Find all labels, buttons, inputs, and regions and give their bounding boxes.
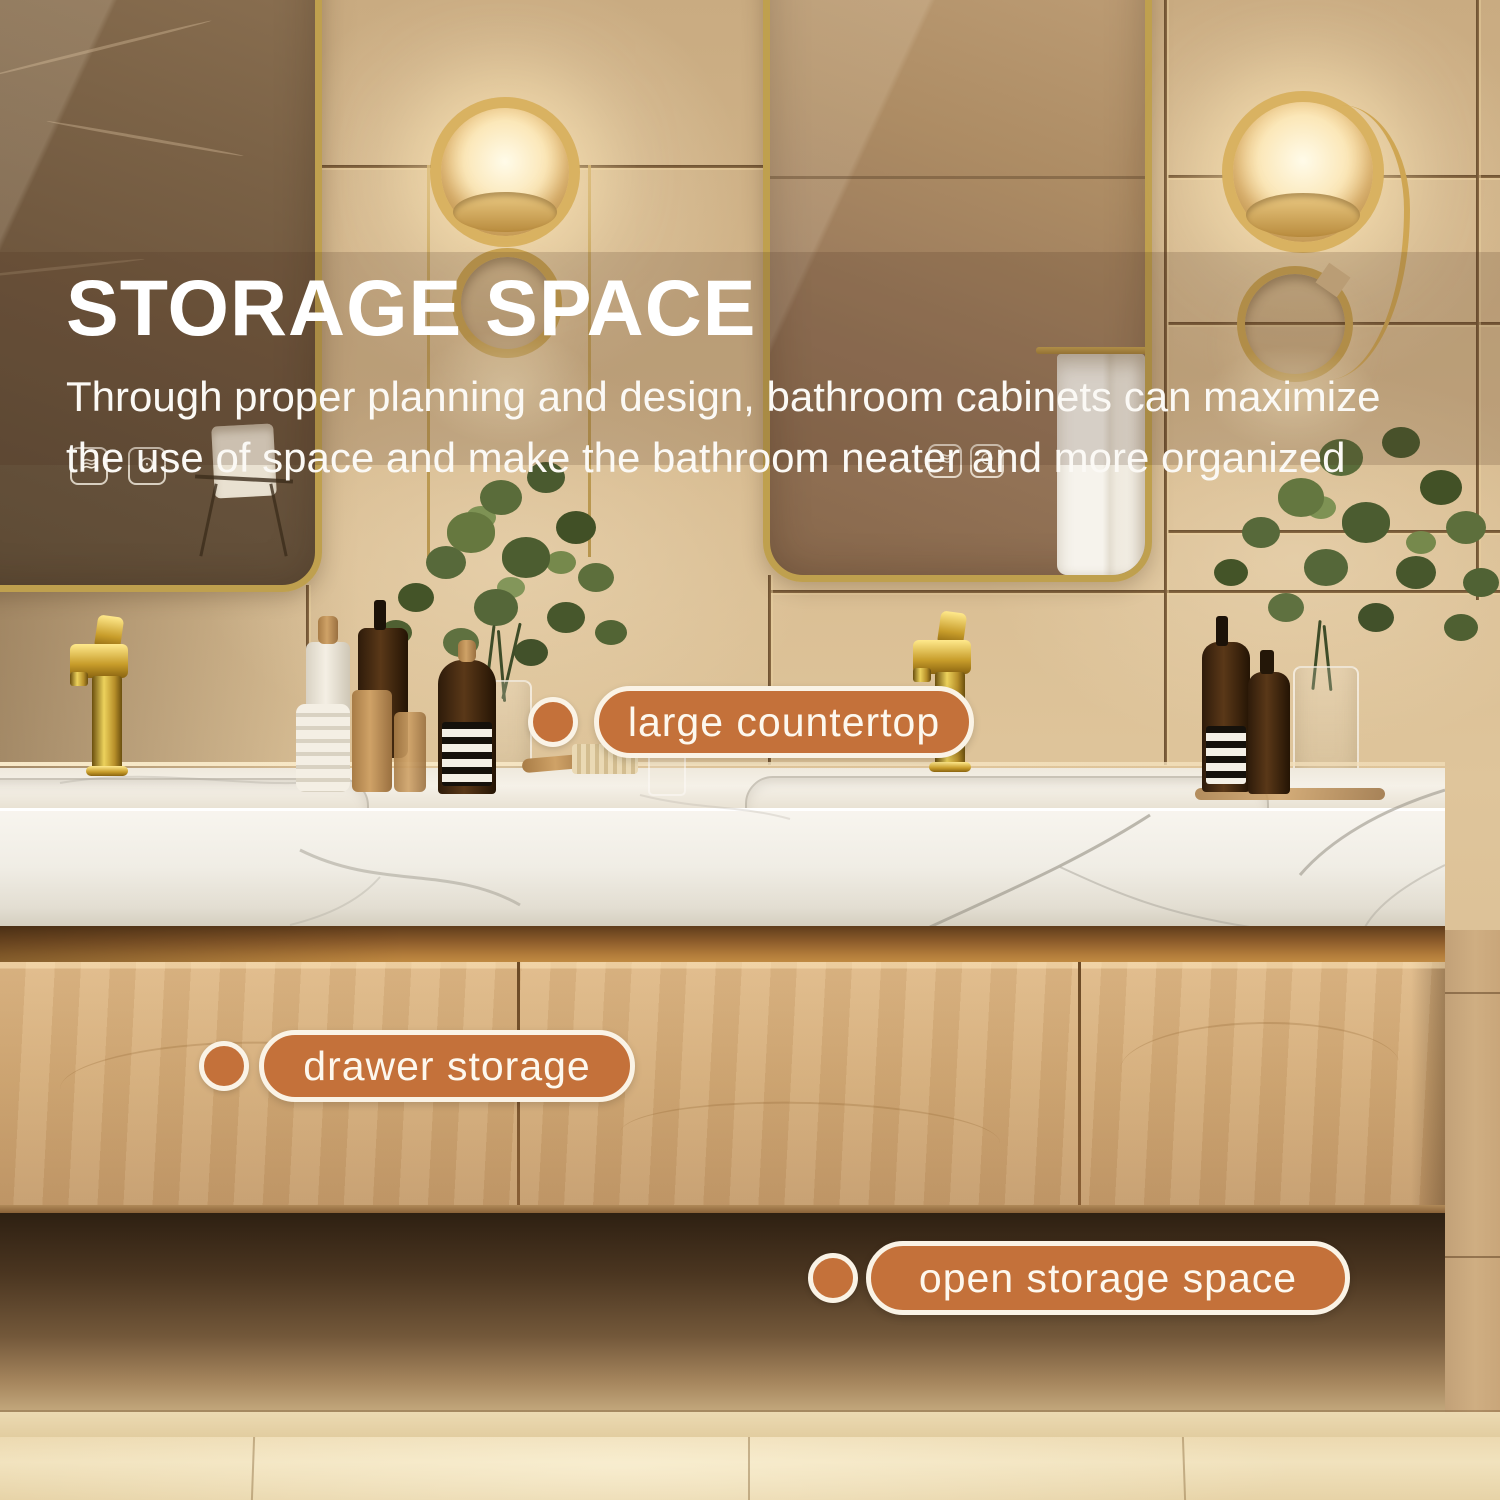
marble-vein xyxy=(640,795,790,819)
callout-drawer-storage: drawer storage xyxy=(199,1030,635,1102)
faucet-spout xyxy=(70,672,88,686)
callout-open-storage-space: open storage space xyxy=(808,1241,1350,1315)
sconce-cup xyxy=(453,192,557,232)
striped-label xyxy=(442,722,492,786)
faucet-left xyxy=(62,616,142,778)
striped-label xyxy=(1206,726,1246,784)
subtitle-line-1: Through proper planning and design, bath… xyxy=(66,366,1380,427)
ribbed-jar xyxy=(296,704,350,792)
floor-grout-line xyxy=(1182,1437,1186,1500)
wood-grain xyxy=(1119,1020,1401,1117)
floor-grout-line xyxy=(748,1437,750,1500)
amber-bottle-right xyxy=(1202,642,1250,792)
bottle-cap xyxy=(1260,650,1274,674)
pump-top-black xyxy=(374,600,386,630)
marble-vein xyxy=(300,850,520,905)
marble-vein xyxy=(930,815,1150,927)
faucet-base xyxy=(929,762,971,772)
amber-bottle-right-2 xyxy=(1248,672,1290,794)
headline-subtitle: Through proper planning and design, bath… xyxy=(66,366,1380,488)
baseboard xyxy=(0,1412,1500,1437)
bottle-cap-wood xyxy=(458,640,476,662)
callout-pill: open storage space xyxy=(866,1241,1350,1315)
callout-pill: large countertop xyxy=(594,686,974,758)
headline-title: STORAGE SPACE xyxy=(66,262,756,354)
drawer-seam xyxy=(1078,962,1081,1213)
floor-tiles xyxy=(0,1437,1500,1500)
pump-top-wood xyxy=(318,616,338,644)
faucet-base xyxy=(86,766,128,776)
wood-grain xyxy=(619,1097,1001,1179)
callout-marker xyxy=(528,697,578,747)
faucet-spout xyxy=(913,668,931,682)
bathroom-vanity-ad: ≋ ⊙ ≋ ⊙ xyxy=(0,0,1500,1500)
wood-canister xyxy=(352,690,392,792)
panel-seam xyxy=(1445,1256,1500,1258)
side-wall-panel xyxy=(1445,930,1500,1412)
callout-large-countertop: large countertop xyxy=(528,686,974,758)
mirror-reflected-seam xyxy=(770,176,1145,179)
faucet-body xyxy=(92,676,122,772)
marble-vein xyxy=(1362,865,1445,933)
amber-bottle-striped-label xyxy=(438,660,496,794)
marble-vein xyxy=(1300,790,1445,875)
callout-marker xyxy=(199,1041,249,1091)
panel-seam xyxy=(1445,992,1500,994)
floor-grout-line xyxy=(251,1437,255,1500)
counter-recess-strip xyxy=(0,926,1445,962)
subtitle-line-2: the use of space and make the bathroom n… xyxy=(66,427,1380,488)
marble-vein xyxy=(1060,867,1250,927)
callout-marker xyxy=(808,1253,858,1303)
dropper-cap xyxy=(1216,616,1228,646)
callout-pill: drawer storage xyxy=(259,1030,635,1102)
cabinet-bottom-edge xyxy=(0,1205,1445,1213)
marble-vein xyxy=(290,877,380,925)
wall-sconce-left-top-ring xyxy=(430,97,580,247)
wood-jar-small xyxy=(394,712,426,792)
